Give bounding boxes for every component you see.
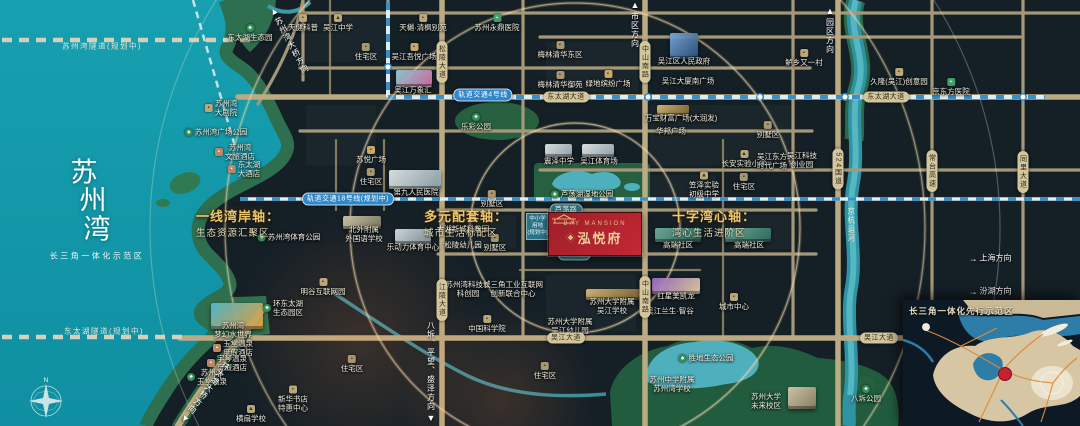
building-illustration	[670, 33, 698, 59]
direction-arrow: →上海方向	[969, 253, 1012, 264]
map-label-text: 宇琴温泉度假酒店	[217, 354, 247, 372]
map-label-text: 松陵幼儿园	[444, 241, 482, 250]
tree-icon: ♣	[187, 373, 195, 381]
map-label-text: 吴江科技创业园	[787, 151, 817, 169]
tree-icon: ♣	[246, 24, 254, 32]
map-label-text: 苏州湾玉堂温泉	[197, 368, 227, 386]
map-label-text: 东太湖大酒店	[238, 160, 261, 178]
tree-icon: ♣	[263, 304, 271, 312]
building-icon: ▪	[895, 68, 903, 76]
building-illustrations	[0, 0, 1080, 426]
light-flare	[400, 300, 600, 426]
map-label-text: 苏州湾文旅酒店	[225, 143, 255, 161]
map-label-text: 苏州大学未来校区	[751, 392, 781, 410]
city-blocks	[306, 16, 790, 331]
suzhou-bay-water	[0, 0, 288, 426]
map-label-text: 乐彩公园	[461, 122, 491, 131]
map-label: ▪别墅区	[757, 121, 780, 139]
map-label-text: 苏州湾体育公园	[268, 233, 321, 242]
map-label: 吴江区人民政府	[658, 57, 711, 66]
map-label: ♣胜地生态公园	[679, 354, 734, 363]
map-label: 红星美凯龙	[657, 292, 695, 301]
home-icon: ▪	[556, 41, 564, 49]
school-icon: ▲	[700, 172, 708, 180]
map-label: ▪别墅区	[481, 190, 504, 208]
map-label: 第九人民医院	[394, 188, 439, 197]
park-areas	[203, 102, 898, 426]
direction-arrow-layer: ▲市区方向▲园区方向▲苏州湾大桥方向→上海方向→汾湖方向八坼、平望、盛泽方向▼环…	[0, 0, 1080, 426]
land-background	[0, 0, 1080, 426]
mall-icon: ▪	[604, 70, 612, 78]
location-map: ♣东太湖生态园▪苏州湾大剧院♣苏州湾广场公园▪苏州湾文旅酒店▪东太湖大酒店♣苏州…	[0, 0, 1080, 426]
arrow-text: 上海方向	[980, 253, 1012, 264]
direction-arrow: 环太湖大桥方向▼	[178, 360, 233, 426]
road-network	[178, 0, 1080, 426]
metro-line-4	[388, 2, 1045, 97]
map-label: ▲横扇学校	[236, 405, 266, 423]
highway-lines	[925, 328, 1077, 422]
map-label-text: 苏州中学附属苏州湾学校	[650, 375, 695, 393]
axis-banner-subtitle: 湾心生活进阶区	[672, 225, 756, 239]
axis-banner-title: 十字湾心轴：	[672, 206, 756, 225]
tree-icon: ♣	[185, 128, 193, 136]
home-icon: ▪	[764, 121, 772, 129]
map-label-text: 震泽中学	[544, 157, 574, 166]
map-label-text: 住宅区	[534, 371, 557, 380]
road-name-pill: 东太湖隧道(规划中)	[60, 325, 148, 337]
map-label: ♣芦荡湖湿地公园	[551, 190, 614, 199]
map-label: ▪苏悦广场	[356, 146, 386, 164]
building-icon: ▪	[800, 49, 808, 57]
road-name-pill: 笠泽路	[558, 248, 591, 261]
map-label: ▪梅林清华御苑	[538, 71, 583, 89]
bay-name-char: 湾	[84, 208, 111, 247]
yangtze-river	[958, 312, 1080, 341]
map-label: ▪苏州湾大剧院	[205, 99, 238, 117]
home-icon: ▪	[491, 234, 499, 242]
map-label-text: 长三角工业互联网创新联合中心	[483, 280, 543, 298]
map-label: ▪中国科学院	[468, 315, 506, 333]
road-name-pill: 524国道	[833, 148, 844, 189]
shanghai-area	[1031, 366, 1073, 400]
road-name-pill: 苏州湾隧道(规划中)	[58, 40, 146, 52]
map-label: ▪梅林清华东区	[538, 41, 583, 59]
road-name-pill: 中山南路	[640, 276, 651, 318]
metro-station-icon	[385, 64, 1026, 100]
hotel-icon: ▪	[207, 359, 215, 367]
map-base	[0, 0, 1080, 426]
tree-icon: ♣	[862, 385, 870, 393]
map-label: ▲长安实验小学	[722, 150, 767, 168]
home-icon: ▪	[362, 43, 370, 51]
map-label-text: 中国科学院	[468, 324, 506, 333]
map-label: ▪苏州湾文旅酒店	[215, 143, 255, 161]
map-label: ▪吴江吾悦广场	[392, 43, 437, 61]
map-label: ▪天樾·清枫别苑	[399, 14, 447, 32]
map-label-text: 环东太湖生态园区	[273, 299, 303, 317]
map-label: 吴江科技创业园	[787, 151, 817, 169]
home-icon: ▪	[541, 362, 549, 370]
map-label: ▲吴江中学	[323, 14, 353, 32]
tree-icon: ♣	[679, 354, 687, 362]
map-label: ♣乐彩公园	[461, 113, 491, 131]
home-icon: ▪	[740, 173, 748, 181]
direction-arrow: ▲苏州湾大桥方向	[267, 4, 312, 75]
inset-title: 长三角一体化先行示范区	[909, 305, 1014, 317]
building-illustration	[396, 70, 432, 87]
map-label-text: 天健科普	[288, 23, 318, 32]
map-label-text: 城市中心	[719, 302, 749, 311]
metro-line-pill: 轨道交通4号线	[453, 89, 512, 102]
tree-icon: ♣	[551, 190, 559, 198]
building-illustration	[343, 216, 381, 229]
bay-tagline: 长三角一体化示范区	[50, 251, 145, 262]
hospital-icon: +	[947, 78, 955, 86]
map-label: ▪住宅区	[534, 362, 557, 380]
map-label-text: 新华书店特惠中心	[278, 395, 308, 413]
map-label: ▪天健科普	[288, 14, 318, 32]
delta-land	[933, 330, 1080, 421]
map-label: ▪宇琴温泉度假酒店	[207, 354, 247, 372]
map-label: 苏州大学附属吴江幼儿园	[548, 317, 593, 335]
radius-rings	[150, 0, 1000, 426]
building-illustration	[586, 289, 640, 300]
building-icon: ▪	[205, 104, 213, 112]
mall-icon: ▪	[410, 43, 418, 51]
metro-line-pill: 轨道交通18号线(规划中)	[302, 193, 394, 206]
map-label-text: 太湖新城科教园	[437, 225, 490, 234]
map-label: ▪新华书店特惠中心	[278, 386, 308, 413]
tree-icon: ♣	[472, 113, 480, 121]
map-label-text: 吴江区人民政府	[658, 57, 711, 66]
map-label: +苏州永鼎医院	[475, 14, 520, 32]
direction-arrow: ▲市区方向	[630, 0, 641, 48]
map-label: ♣苏州湾体育公园	[258, 233, 321, 242]
arrow-icon: ▲	[631, 0, 640, 10]
grand-canal	[849, 0, 861, 426]
map-label: 华邦广场	[656, 127, 686, 136]
map-label-text: 久隆(吴江)创意园	[870, 77, 928, 86]
building-illustration	[389, 170, 441, 189]
map-label: ♣东太湖生态园	[228, 24, 273, 42]
developer-logo-icon	[566, 233, 576, 243]
map-label-text: 芦荡湖湿地公园	[561, 190, 614, 199]
map-label-text: 京东方医院	[932, 87, 970, 96]
axis-banner-subtitle: 生态资源汇聚区	[196, 225, 280, 239]
map-label-text: 第九人民医院	[394, 188, 439, 197]
project-marker: BAY MANSION 泓悦府	[548, 212, 642, 256]
map-label: 吴江东方时代广场	[757, 152, 787, 170]
direction-arrow: ▲园区方向	[825, 6, 836, 54]
inset-map: 长三角一体化先行示范区	[903, 300, 1080, 426]
map-label-text: 东太湖生态园	[228, 33, 273, 42]
home-icon: ▪	[488, 190, 496, 198]
mall-icon: ▪	[367, 146, 375, 154]
map-label-text: 乐动力体育中心	[387, 243, 440, 252]
map-label-text: 苏州湾广场公园	[195, 128, 248, 137]
map-label-text: 苏州大学附属吴江学校	[590, 297, 635, 315]
school-icon: ▲	[247, 405, 255, 413]
map-label: 高端社区	[734, 241, 764, 250]
home-icon: ▪	[367, 168, 375, 176]
building-illustration	[657, 105, 689, 116]
map-label: ▪绿地缤纷广场	[586, 70, 631, 88]
map-label-text: 别墅区	[757, 130, 780, 139]
school-icon: ▲	[740, 150, 748, 158]
arrow-icon: ▲	[267, 5, 280, 18]
map-label-text: 吴江东方时代广场	[757, 152, 787, 170]
map-label-text: 住宅区	[733, 182, 756, 191]
map-label: 高端社区	[663, 241, 693, 250]
arrow-icon: ▼	[178, 412, 191, 425]
school-icon: ▲	[334, 14, 342, 22]
map-label-text: 鲈乡又一村	[785, 58, 823, 67]
map-label: 吴江兰生·智谷	[646, 307, 694, 316]
map-label-text: 梅林清华东区	[538, 50, 583, 59]
map-label: ▪明谷互联网园	[301, 278, 346, 296]
building-illustration	[582, 144, 614, 157]
hotel-icon: ▪	[213, 344, 221, 352]
map-label: 吴江体育场	[580, 157, 618, 166]
map-label: 万宝财富广场(大润发)	[645, 114, 718, 123]
map-label-text: 明谷互联网园	[301, 287, 346, 296]
map-label: 北外附属外国语学校	[345, 225, 383, 243]
map-label-text: 住宅区	[355, 52, 378, 61]
hospital-icon: +	[493, 14, 501, 22]
taihu-lake	[973, 353, 1003, 380]
map-label-text: 高端社区	[663, 241, 693, 250]
river-name-label: 京杭运河	[845, 203, 857, 247]
road-name-pill: 芦荡路	[550, 204, 583, 217]
arrow-text: 汾湖方向	[980, 286, 1012, 297]
building-illustration	[655, 228, 701, 242]
school-plot-note: 中小学用地(规划中)	[526, 213, 549, 240]
road-name-pill: 东太湖大道	[863, 92, 909, 103]
axis-banner-title: 一线湾岸轴：	[196, 206, 280, 225]
map-label-text: 苏州湾科技城科创园	[446, 280, 491, 298]
building-icon: ▪	[299, 14, 307, 22]
arrow-text: 八坼、平望、盛泽方向	[426, 321, 437, 411]
axis-banner: 多元配套轴：城市生活标配区	[424, 206, 508, 239]
building-illustration	[545, 144, 572, 157]
map-label-text: 华邦广场	[656, 127, 686, 136]
bay-island	[167, 168, 204, 198]
map-label: 苏州大学未来校区	[751, 392, 781, 410]
map-label: ▪别墅区	[484, 234, 507, 252]
map-label-text: 梅林清华御苑	[538, 80, 583, 89]
svg-text:N: N	[44, 377, 49, 384]
map-label: ♣八坼公园	[851, 385, 881, 403]
map-label: 苏州中学附属苏州湾学校	[650, 375, 695, 393]
map-label: ▪住宅区	[360, 168, 383, 186]
map-label-text: 别墅区	[481, 199, 504, 208]
map-label: ▪住宅区	[733, 173, 756, 191]
building-illustration	[211, 303, 263, 329]
map-label: ▪鲈乡又一村	[785, 49, 823, 67]
bay-name-char: 州	[80, 179, 107, 218]
building-icon: ▪	[483, 315, 491, 323]
building-illustration	[725, 228, 771, 242]
arrow-text: 环太湖大桥方向	[185, 360, 232, 416]
building-illustration	[652, 278, 700, 294]
map-label: 长三角工业互联网创新联合中心	[483, 280, 543, 298]
building-illustration	[395, 229, 431, 244]
map-label-text: 住宅区	[360, 177, 383, 186]
map-label: 苏州大学附属吴江学校	[590, 297, 635, 315]
road-label-layer: 苏州湾隧道(规划中)东太湖隧道(规划中)东太湖大道东太湖大道吴江大道吴江大道芦荡…	[0, 0, 1080, 426]
map-label-text: 玉堂温泉度假酒店	[223, 339, 253, 357]
hotel-icon: ▪	[228, 165, 236, 173]
map-label-text: 苏州湾大剧院	[215, 99, 238, 117]
map-label-text: 万宝财富广场(大润发)	[645, 114, 718, 123]
home-icon: ▪	[348, 355, 356, 363]
building-icon: ▪	[730, 293, 738, 301]
pavilion-icon	[549, 213, 579, 224]
map-label: ▪城市中心	[719, 293, 749, 311]
building-icon: ▪	[319, 278, 327, 286]
map-label: ▪住宅区	[341, 355, 364, 373]
road-name-pill: 吴江大道	[860, 333, 898, 344]
road-name-pill: 江陵大道	[437, 279, 448, 321]
arrow-icon: ▲	[826, 6, 835, 16]
arrow-icon: ▼	[427, 413, 436, 423]
map-label-text: 苏悦广场	[356, 155, 386, 164]
map-label: 苏州湾梦幻水世界	[214, 321, 252, 339]
map-label: 乐动力体育中心	[387, 243, 440, 252]
map-label: 震泽中学	[544, 157, 574, 166]
map-label: ♣苏州湾玉堂温泉	[187, 368, 227, 386]
map-label-text: 笠泽实验初级中学	[689, 181, 719, 199]
arrow-text: 苏州湾大桥方向	[272, 15, 311, 76]
tree-icon: ♣	[258, 233, 266, 241]
road-name-pill: 东太湖大道	[543, 92, 589, 103]
map-label-text: 长安实验小学	[722, 159, 767, 168]
map-label-text: 红星美凯龙	[657, 292, 695, 301]
project-name-en: BAY MANSION	[563, 221, 626, 227]
map-label-text: 吴江中学	[323, 23, 353, 32]
transit-lines	[2, 0, 1080, 337]
direction-arrow: →汾湖方向	[969, 286, 1012, 297]
map-label-text: 天樾·清枫别苑	[399, 23, 447, 32]
map-label-text: 住宅区	[341, 364, 364, 373]
axis-banner: 十字湾心轴：湾心生活进阶区	[672, 206, 756, 239]
map-label-text: 吴江体育场	[580, 157, 618, 166]
map-label-text: 苏州永鼎医院	[475, 23, 520, 32]
map-label: +京东方医院	[932, 78, 970, 96]
map-label: ▪久隆(吴江)创意园	[870, 68, 928, 86]
hotel-icon: ▪	[215, 148, 223, 156]
road-name-pill: 同里大道	[1018, 151, 1029, 193]
map-label: ♣环东太湖生态园区	[263, 299, 303, 317]
building-icon: ▪	[289, 386, 297, 394]
map-label: 太湖新城科教园	[437, 225, 490, 234]
road-name-pill: 松陵大道	[437, 41, 448, 83]
building-illustration	[788, 387, 816, 409]
rivers	[268, 0, 861, 426]
map-label-text: 苏州湾梦幻水世界	[214, 321, 252, 339]
poi-layer: ♣东太湖生态园▪苏州湾大剧院♣苏州湾广场公园▪苏州湾文旅酒店▪东太湖大酒店♣苏州…	[0, 0, 1080, 426]
arrow-icon: →	[969, 253, 978, 263]
building-icon: ▪	[419, 14, 427, 22]
map-label-text: 胜地生态公园	[689, 354, 734, 363]
map-label: 吴江万象汇	[394, 86, 432, 95]
map-label: ♣苏州湾广场公园	[185, 128, 248, 137]
bay-name-char: 苏	[71, 151, 98, 190]
map-label-text: 吴江万象汇	[394, 86, 432, 95]
map-label-text: 八坼公园	[851, 394, 881, 403]
map-label-text: 北外附属外国语学校	[345, 225, 383, 243]
project-location-marker	[999, 368, 1012, 381]
direction-arrow: 八坼、平望、盛泽方向▼	[426, 321, 437, 423]
home-icon: ▪	[556, 71, 564, 79]
arrow-text: 市区方向	[630, 12, 641, 48]
road-name-pill: 中山南路	[640, 41, 651, 83]
map-label-text: 吴江吾悦广场	[392, 52, 437, 61]
map-label-text: 高端社区	[734, 241, 764, 250]
map-label-text: 绿地缤纷广场	[586, 79, 631, 88]
map-label-text: 别墅区	[484, 243, 507, 252]
map-label: 松陵幼儿园	[444, 241, 482, 250]
map-label: ▪东太湖大酒店	[228, 160, 261, 178]
axis-banner-subtitle: 城市生活标配区	[424, 225, 508, 239]
light-flare	[230, 210, 490, 426]
map-label: ▲笠泽实验初级中学	[689, 172, 719, 199]
map-label: ▪住宅区	[355, 43, 378, 61]
axis-banner-title: 多元配套轴：	[424, 206, 508, 225]
arrow-icon: →	[969, 286, 978, 296]
map-label: 吴江大厦南广场	[662, 77, 715, 86]
map-label-text: 吴江大厦南广场	[662, 77, 715, 86]
axis-banner: 一线湾岸轴：生态资源汇聚区	[196, 206, 280, 239]
arrow-text: 园区方向	[825, 18, 836, 54]
road-name-pill: 常台高速	[927, 150, 938, 192]
map-label-text: 吴江兰生·智谷	[646, 307, 694, 316]
map-label: ▪玉堂温泉度假酒店	[213, 339, 253, 357]
bay-title: 长三角一体化示范区 苏州湾	[0, 0, 1080, 426]
road-name-pill: 吴江大道	[547, 333, 585, 344]
compass-icon: N	[24, 375, 68, 421]
axis-banner-layer: 一线湾岸轴：生态资源汇聚区多元配套轴：城市生活标配区十字湾心轴：湾心生活进阶区	[0, 0, 1080, 426]
project-name-zh: 泓悦府	[577, 228, 622, 247]
map-label: 苏州湾科技城科创园	[446, 280, 491, 298]
map-label-text: 苏州大学附属吴江幼儿园	[548, 317, 593, 335]
map-label-text: 横扇学校	[236, 414, 266, 423]
